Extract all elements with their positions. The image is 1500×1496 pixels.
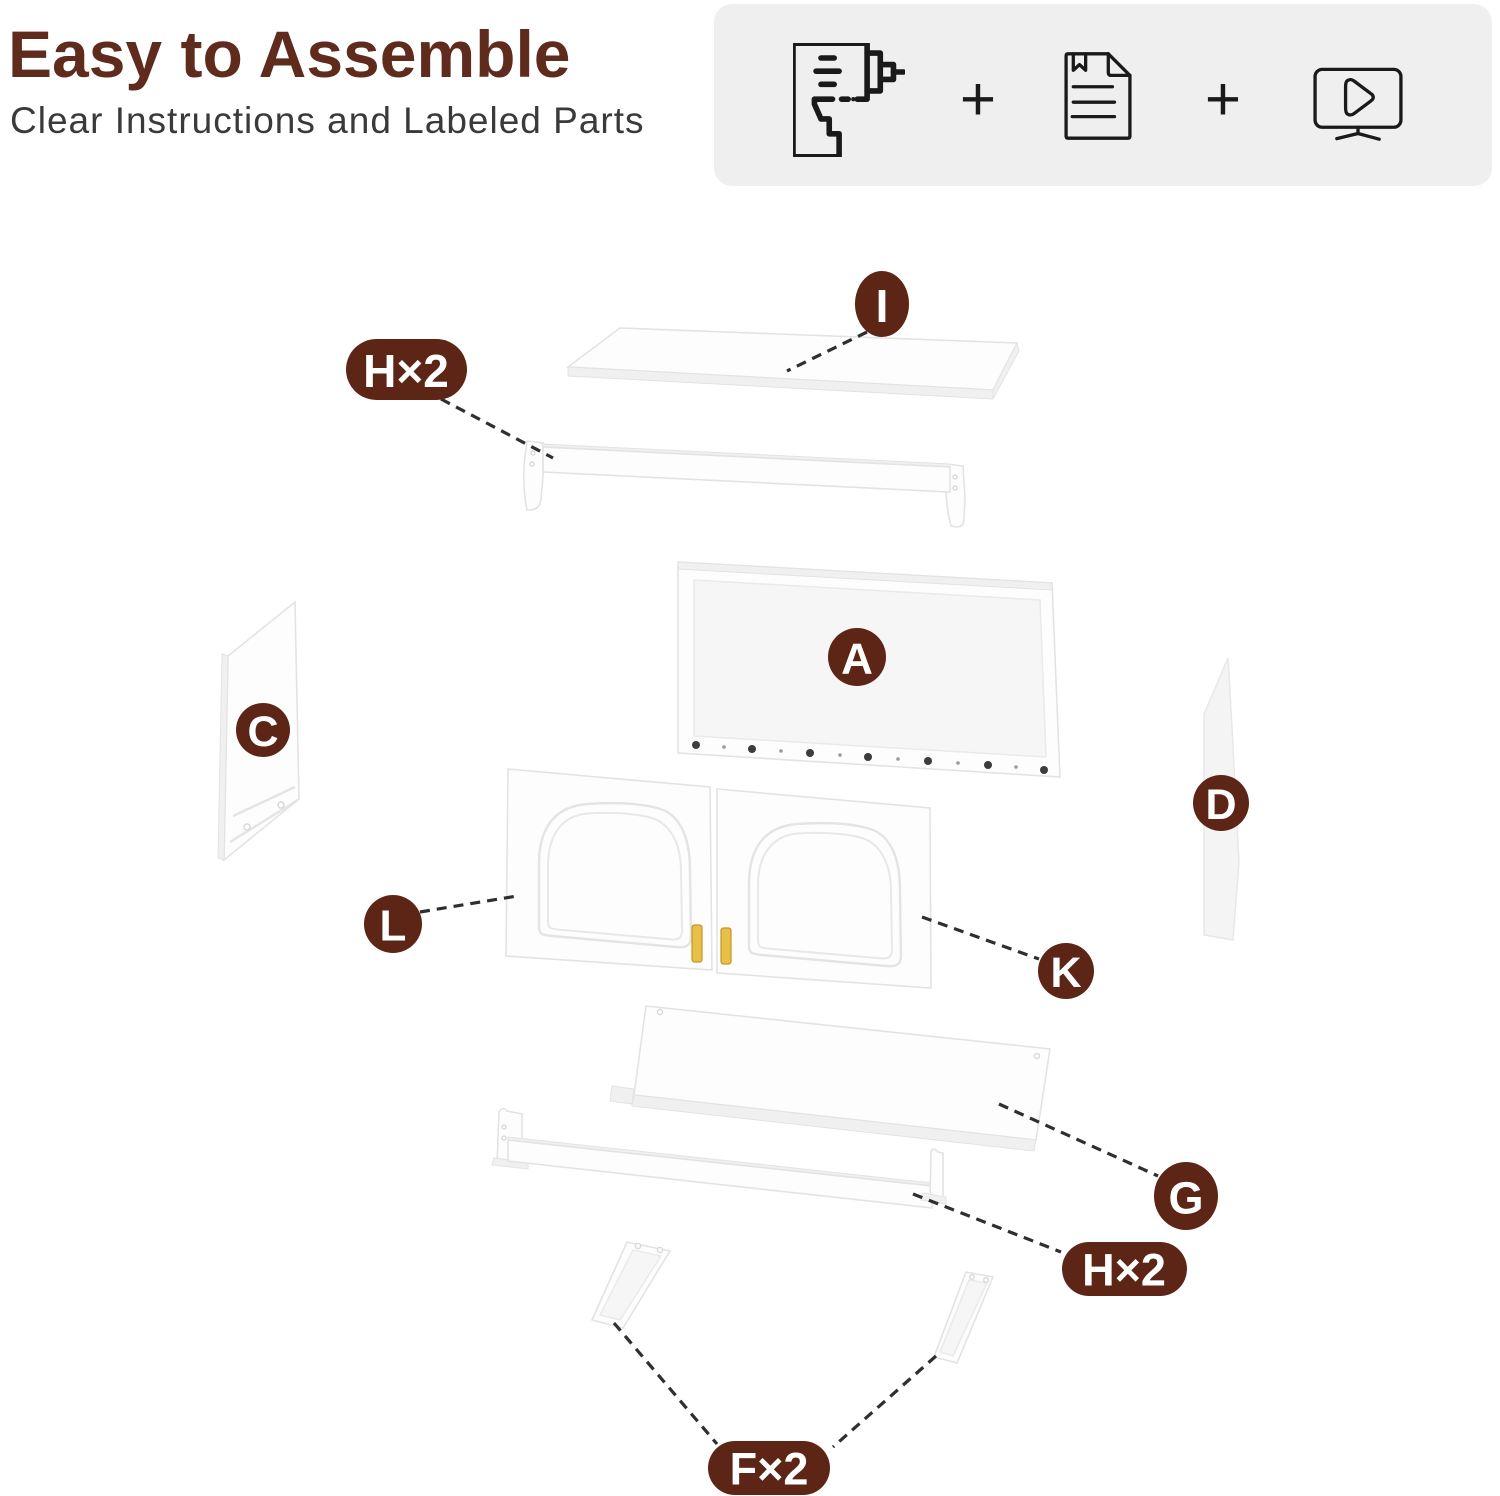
connector-line	[913, 1194, 1061, 1252]
screw-hole	[953, 486, 957, 490]
part-label-l: L	[364, 895, 422, 953]
svg-text:C: C	[247, 708, 278, 756]
svg-text:K: K	[1050, 949, 1081, 997]
part-label-k: K	[1038, 943, 1094, 999]
connector-line	[833, 1356, 936, 1447]
door-handle	[721, 928, 731, 964]
screw-hole	[502, 1125, 506, 1129]
svg-text:D: D	[1205, 781, 1236, 829]
screw-hole	[531, 451, 535, 455]
part-label-h-top: H×2	[346, 339, 467, 400]
connector-line	[614, 1323, 717, 1444]
screw-hole	[984, 1278, 989, 1283]
part-label-i: I	[855, 271, 909, 337]
screw-hole	[635, 1243, 640, 1248]
part-label-d: D	[1193, 775, 1249, 831]
part-label-h-bottom: H×2	[1062, 1242, 1187, 1296]
part-label-f: F×2	[708, 1441, 830, 1495]
svg-text:A: A	[841, 635, 873, 684]
screw-hole	[658, 1010, 663, 1015]
door-handle	[692, 925, 702, 962]
part-label-a: A	[828, 628, 886, 686]
part-label-c: C	[236, 703, 290, 757]
bottom-shelf	[610, 1006, 1050, 1151]
svg-text:H×2: H×2	[1082, 1245, 1166, 1296]
left-door	[506, 769, 712, 970]
screw-hole	[502, 1136, 506, 1140]
mounting-bracket-right	[934, 1272, 993, 1363]
connector-line	[420, 896, 517, 912]
assembly-infographic: Easy to Assemble Clear Instructions and …	[0, 0, 1500, 1496]
hanging-rail-top	[524, 441, 965, 527]
mounting-bracket-left	[592, 1242, 670, 1328]
connector-line	[441, 399, 553, 458]
screw-hole	[244, 824, 250, 830]
svg-text:H×2: H×2	[363, 345, 449, 397]
svg-text:L: L	[380, 902, 407, 951]
screw-hole	[1035, 1054, 1040, 1059]
screw-hole	[530, 462, 534, 466]
screw-hole	[657, 1247, 662, 1252]
svg-text:G: G	[1168, 1173, 1203, 1224]
svg-text:F×2: F×2	[730, 1444, 809, 1495]
screw-hole	[953, 475, 957, 479]
screw-hole	[970, 1275, 975, 1280]
right-door	[717, 789, 931, 988]
part-label-g: G	[1154, 1162, 1218, 1230]
top-panel	[568, 328, 1019, 399]
exploded-parts-diagram: I H×2 A C D L K G	[0, 0, 1500, 1496]
svg-text:I: I	[876, 280, 889, 332]
connector-line	[922, 917, 1039, 959]
screw-hole	[278, 802, 284, 808]
